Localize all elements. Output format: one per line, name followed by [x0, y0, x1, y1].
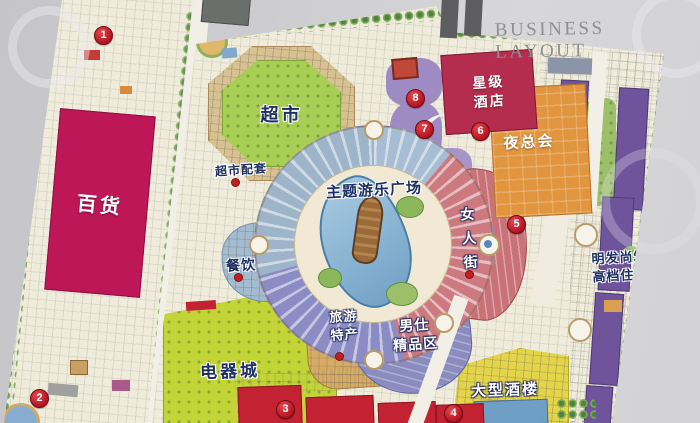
left-edge-tree-row: [0, 0, 53, 423]
marker-1: 1: [94, 26, 113, 45]
building-block-tan: [604, 300, 622, 312]
dining-dot: [234, 273, 243, 282]
tourism-specialty-label: 旅游 特产: [317, 306, 371, 346]
residential-slab: [613, 87, 649, 210]
page-title: BUSINESS LAYOUT: [495, 16, 696, 63]
tourism-line2: 特产: [330, 326, 359, 343]
building-block-purple: [112, 380, 130, 391]
business-layout-map-photo: 百货 超市 超市配套: [0, 0, 700, 423]
courtyard-pavilion: [70, 360, 88, 375]
plaza-entrance-node-bottom: [364, 350, 384, 370]
star-hotel-label: 星级 酒店: [472, 72, 507, 112]
department-store-label: 百货: [76, 187, 124, 220]
supermarket-support-dot: [231, 178, 240, 187]
marker-3: 3: [276, 400, 295, 419]
marker-8: 8: [406, 89, 425, 108]
electronics-city-label: 电器城: [178, 355, 283, 384]
hotel-line2: 酒店: [473, 92, 506, 110]
dark-roof-building: [201, 0, 252, 26]
womens-street-dot: [465, 270, 474, 279]
diagonal-road: [530, 209, 570, 308]
marker-2: 2: [30, 389, 49, 408]
department-store-zone: 百货: [44, 108, 155, 298]
building-block-gray: [48, 383, 79, 398]
residence-label: 明发尚筑 高档住宅: [581, 247, 659, 287]
nightclub-label: 夜总会: [497, 129, 560, 153]
residence-line2: 高档住宅: [592, 267, 649, 285]
red-building: [306, 395, 375, 423]
mens-line1: 男仕: [399, 316, 430, 334]
plaza-entrance-node-top: [364, 120, 384, 140]
marker-7: 7: [415, 120, 434, 139]
marker-5: 5: [507, 215, 526, 234]
building-block-blue: [474, 399, 549, 423]
residence-line1: 明发尚筑: [591, 249, 648, 267]
lake-islet: [396, 196, 424, 218]
tourism-line1: 旅游: [329, 308, 358, 325]
marker-6: 6: [471, 122, 490, 141]
building-block-red: [84, 50, 100, 60]
restaurant-label: 大型酒楼: [455, 377, 556, 401]
logo-bar: [464, 0, 483, 36]
lake-islet: [386, 282, 418, 306]
residence-plaza-circle: [568, 318, 592, 342]
lake-islet: [318, 268, 342, 288]
hotel-line1: 星级: [472, 73, 505, 91]
marker-4: 4: [444, 404, 463, 423]
mens-boutique-label: 男仕 精品区: [383, 314, 447, 356]
pavilion-red: [391, 57, 419, 80]
entrance-node-pool: [484, 240, 492, 248]
mens-line2: 精品区: [393, 334, 439, 353]
pool-chip: [222, 47, 238, 58]
plaza-entrance-node-left: [249, 235, 269, 255]
residence-plaza-circle: [574, 223, 598, 247]
logo-bar: [440, 0, 459, 38]
supermarket-label: 超市: [261, 101, 303, 127]
tourism-dot: [335, 352, 344, 361]
plaza-entrance-node-right: [478, 234, 500, 256]
tree-clump: [556, 398, 596, 422]
building-block-orange: [120, 86, 132, 94]
